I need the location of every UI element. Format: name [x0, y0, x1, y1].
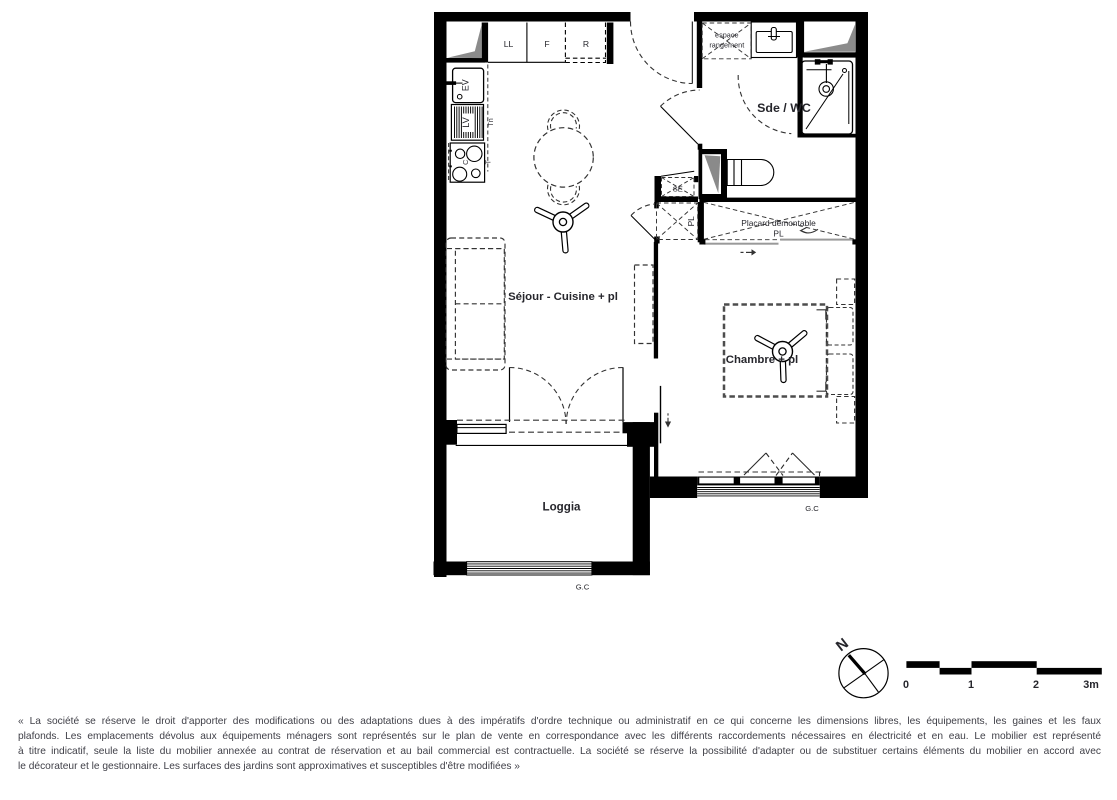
svg-text:1: 1 [968, 679, 974, 691]
svg-text:Sde / WC: Sde / WC [757, 101, 811, 115]
svg-text:G.C: G.C [805, 504, 819, 513]
svg-text:PL: PL [686, 216, 696, 227]
svg-text:T: T [484, 159, 493, 164]
svg-text:2: 2 [1033, 679, 1039, 691]
svg-text:G.C: G.C [576, 583, 590, 592]
svg-text:C: C [461, 160, 470, 165]
svg-text:EV: EV [461, 79, 471, 91]
svg-text:PL: PL [773, 229, 784, 239]
svg-text:F: F [544, 39, 549, 49]
svg-text:0: 0 [903, 679, 909, 691]
svg-text:3m: 3m [1083, 679, 1099, 691]
svg-text:LV: LV [461, 116, 471, 127]
svg-text:espace: espace [715, 31, 739, 40]
svg-text:R: R [583, 39, 589, 49]
svg-text:Séjour - Cuisine + pl: Séjour - Cuisine + pl [508, 291, 618, 303]
svg-text:Chambre + pl: Chambre + pl [726, 354, 798, 366]
svg-text:SE: SE [673, 185, 683, 194]
svg-text:Loggia: Loggia [543, 501, 582, 514]
svg-text:LL: LL [504, 39, 514, 49]
svg-text:Placard démontable: Placard démontable [741, 218, 816, 228]
svg-text:rangement: rangement [709, 41, 744, 50]
svg-text:Tn: Tn [486, 118, 495, 126]
svg-text:N: N [833, 635, 852, 655]
